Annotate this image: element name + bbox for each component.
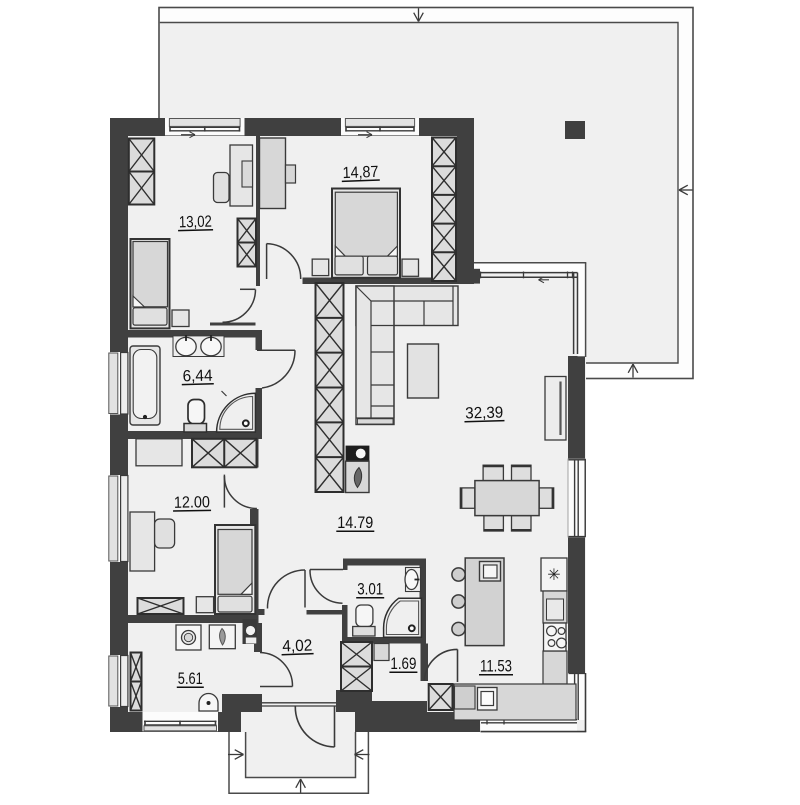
svg-text:1.69: 1.69 (390, 655, 416, 673)
svg-text:3.01: 3.01 (357, 581, 383, 599)
svg-text:32,39: 32,39 (465, 404, 503, 423)
svg-text:13,02: 13,02 (179, 213, 212, 232)
svg-text:14,87: 14,87 (342, 163, 379, 182)
svg-text:4,02: 4,02 (282, 636, 313, 655)
svg-text:14.79: 14.79 (337, 514, 373, 532)
svg-text:5.61: 5.61 (178, 670, 203, 688)
svg-text:12.00: 12.00 (174, 493, 210, 512)
svg-text:11.53: 11.53 (480, 658, 512, 676)
svg-text:✳: ✳ (547, 567, 560, 584)
svg-text:6,44: 6,44 (182, 367, 212, 386)
